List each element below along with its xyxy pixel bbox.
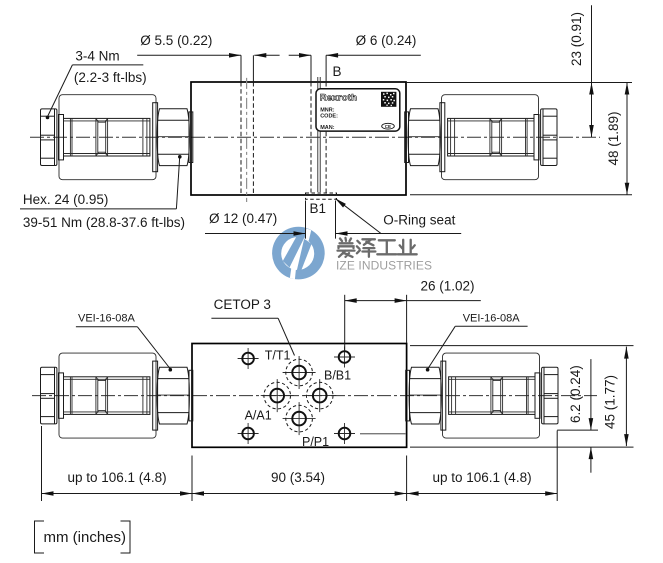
svg-text:A/A1: A/A1 [245, 409, 272, 423]
svg-text:Ø 5.5 (0.22): Ø 5.5 (0.22) [140, 33, 212, 48]
svg-text:P/P1: P/P1 [302, 435, 329, 449]
svg-text:T/T1: T/T1 [265, 348, 291, 362]
svg-text:VEI-16-08A: VEI-16-08A [463, 312, 521, 324]
svg-text:Hex. 24 (0.95): Hex. 24 (0.95) [23, 192, 109, 207]
svg-text:O-Ring seat: O-Ring seat [383, 212, 455, 227]
svg-text:45 (1.77): 45 (1.77) [603, 375, 618, 429]
svg-text:48 (1.89): 48 (1.89) [606, 111, 621, 165]
svg-text:39-51 Nm (28.8-37.6 ft-lbs): 39-51 Nm (28.8-37.6 ft-lbs) [23, 215, 185, 230]
svg-text:6.2 (0.24): 6.2 (0.24) [568, 365, 583, 423]
svg-text:B1: B1 [310, 201, 327, 216]
svg-text:3-4 Nm: 3-4 Nm [75, 49, 119, 64]
svg-text:90 (3.54): 90 (3.54) [271, 470, 325, 485]
svg-text:B: B [333, 64, 342, 79]
svg-text:mm (inches): mm (inches) [44, 529, 127, 546]
svg-text:VEI-16-08A: VEI-16-08A [78, 312, 136, 324]
svg-text:23 (0.91): 23 (0.91) [569, 12, 584, 66]
svg-text:up to 106.1 (4.8): up to 106.1 (4.8) [433, 470, 532, 485]
svg-text:Ø 12 (0.47): Ø 12 (0.47) [209, 211, 277, 226]
svg-text:CODE:: CODE: [320, 114, 338, 120]
svg-text:MNR:: MNR: [320, 107, 335, 113]
svg-text:CE: CE [385, 124, 391, 129]
svg-text:IZE INDUSTRIES: IZE INDUSTRIES [336, 259, 432, 273]
svg-text:Ø 6 (0.24): Ø 6 (0.24) [356, 33, 417, 48]
svg-text:B/B1: B/B1 [324, 369, 351, 383]
svg-text:up to 106.1 (4.8): up to 106.1 (4.8) [68, 470, 167, 485]
svg-text:(2.2-3 ft-lbs): (2.2-3 ft-lbs) [74, 70, 147, 85]
svg-text:Rexroth: Rexroth [320, 92, 357, 103]
svg-text:CETOP 3: CETOP 3 [214, 297, 271, 312]
svg-text:26 (1.02): 26 (1.02) [421, 279, 475, 294]
svg-text:MAN:: MAN: [320, 125, 335, 131]
